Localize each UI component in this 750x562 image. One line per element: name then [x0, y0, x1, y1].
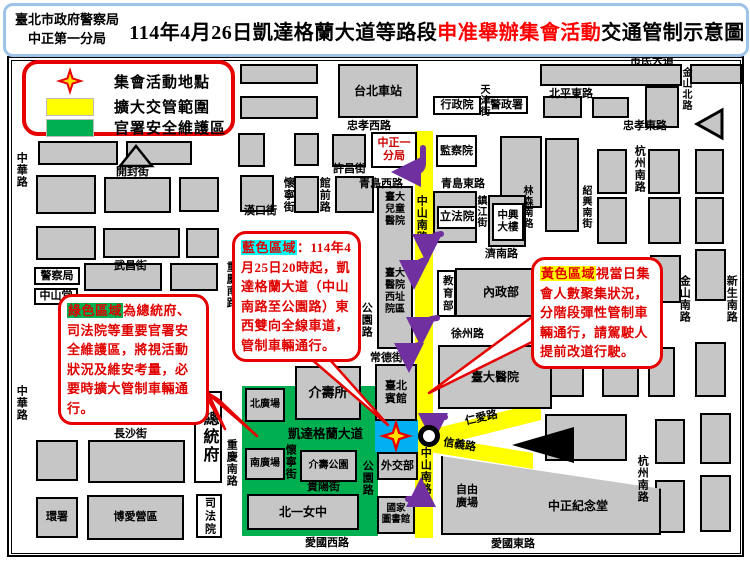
detour-arrow-1 [406, 148, 423, 172]
wedge-block-renai-xinyi [512, 427, 574, 463]
green-region-highlight: 綠色區域 [67, 303, 123, 318]
legend-item-security-zone: 官署安全維護區 [26, 117, 231, 138]
legend-box: 集會活動地點 擴大交管範圍 官署安全維護區 [22, 60, 235, 136]
yellow-region-highlight: 黃色區域 [540, 266, 596, 281]
blue-region-highlight: 藍色區域 [241, 240, 297, 255]
yellow-swatch-icon [26, 98, 114, 116]
detour-arrow-4 [421, 318, 437, 332]
legend-label: 集會活動地點 [114, 71, 210, 92]
title-suffix: 交通管制示意圖 [601, 22, 745, 44]
title-highlight: 申准舉辦集會活動 [437, 22, 601, 44]
detour-arrow-2 [427, 234, 441, 249]
green-swatch-icon [26, 119, 114, 137]
assembly-location-star-icon [379, 419, 413, 453]
legend-label: 擴大交管範圍 [114, 96, 210, 117]
agency-line1: 臺北市政府警察局 [6, 11, 128, 30]
green-callout-pointer-2 [206, 392, 257, 436]
triangle-block-east [697, 110, 722, 138]
header: 臺北市政府警察局 中正第一分局 114年4月26日凱達格蘭大道等路段申准舉辦集會… [3, 3, 749, 57]
triangle-block-kaifeng [120, 146, 152, 166]
detour-arrow-7 [408, 492, 421, 499]
callout-blue-region: 藍色區域：114年4月25日20時起，凱達格蘭大道（中山南路至公園路）東西雙向全… [232, 231, 361, 362]
jingfumen-roundabout [421, 428, 438, 445]
callout-yellow-region: 黃色區域視當日集會人數聚集狀況，分階段彈性管制車輛通行，請駕駛人提前改道行駛。 [531, 257, 663, 369]
page-title: 114年4月26日凱達格蘭大道等路段申准舉辦集會活動交通管制示意圖 [128, 16, 746, 45]
star-icon [26, 66, 114, 96]
detour-arrow-5 [409, 345, 419, 358]
yellow-callout-pointer [429, 314, 536, 393]
blue-region-text: ：114年4月25日20時起，凱達格蘭大道（中山南路至公園路）東西雙向全線車道，… [241, 240, 351, 353]
agency-name: 臺北市政府警察局 中正第一分局 [6, 11, 128, 49]
green-region-text: 為總統府、司法院等重要官署安全維護區，將視活動狀況及維安考量，必要時擴大管制車輛… [67, 303, 191, 416]
callout-green-region: 綠色區域為總統府、司法院等重要官署安全維護區，將視活動狀況及維安考量，必要時擴大… [58, 294, 209, 425]
legend-label: 官署安全維護區 [114, 117, 226, 138]
legend-item-assembly: 集會活動地點 [26, 66, 231, 96]
legend-item-expanded-control: 擴大交管範圍 [26, 96, 231, 117]
detour-arrow-6 [433, 417, 445, 428]
title-prefix: 114年4月26日凱達格蘭大道等路段 [129, 22, 437, 44]
traffic-control-map-page: 臺北市政府警察局 中正第一分局 114年4月26日凱達格蘭大道等路段申准舉辦集會… [0, 0, 750, 562]
detour-arrow-3 [414, 260, 426, 275]
agency-line2: 中正第一分局 [6, 30, 128, 49]
blue-callout-pointer [303, 352, 388, 425]
